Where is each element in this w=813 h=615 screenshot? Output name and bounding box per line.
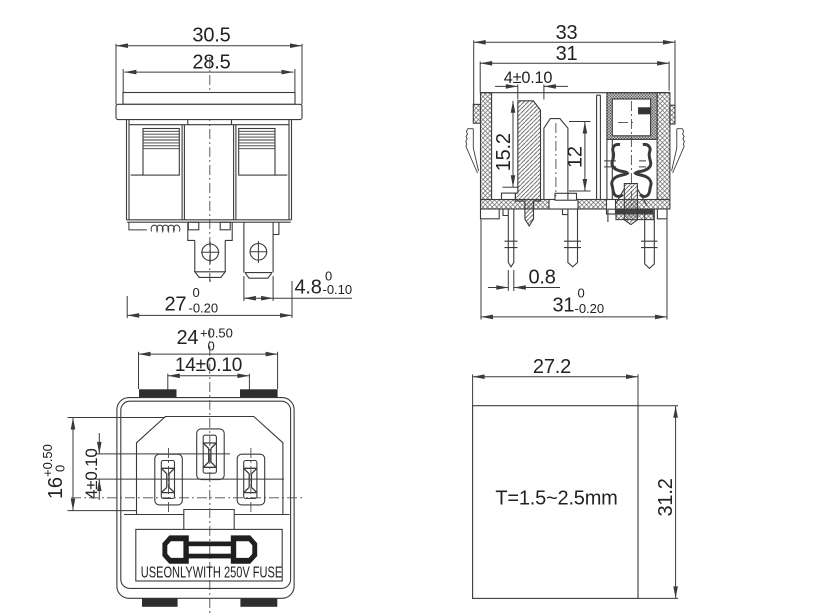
svg-text:-0.20: -0.20 (189, 300, 219, 315)
svg-text:33: 33 (556, 22, 578, 44)
svg-text:0: 0 (53, 465, 68, 472)
svg-text:+0.50: +0.50 (200, 326, 233, 341)
svg-text:27: 27 (165, 293, 187, 315)
svg-text:24: 24 (177, 327, 199, 349)
svg-text:4±0.10: 4±0.10 (82, 448, 101, 499)
svg-text:15.2: 15.2 (493, 133, 515, 171)
svg-text:-0.10: -0.10 (323, 282, 353, 297)
svg-text:31: 31 (556, 43, 578, 65)
svg-text:27.2: 27.2 (533, 356, 571, 378)
svg-text:28.5: 28.5 (192, 51, 230, 73)
svg-text:4±0.10: 4±0.10 (504, 69, 553, 87)
svg-text:0: 0 (208, 339, 215, 354)
svg-text:16: 16 (45, 477, 67, 499)
svg-text:0: 0 (578, 285, 585, 300)
svg-text:12: 12 (565, 146, 587, 168)
svg-text:T=1.5~2.5mm: T=1.5~2.5mm (495, 488, 617, 510)
svg-text:14±0.10: 14±0.10 (175, 355, 242, 376)
svg-text:31.2: 31.2 (655, 478, 677, 516)
svg-text:31: 31 (553, 294, 575, 316)
svg-text:30.5: 30.5 (192, 25, 230, 47)
svg-text:-0.20: -0.20 (575, 301, 605, 316)
svg-text:4.8: 4.8 (295, 277, 322, 299)
svg-text:USEONLYWITH 250V FUSE: USEONLYWITH 250V FUSE (141, 564, 282, 581)
svg-text:0.8: 0.8 (529, 267, 556, 289)
svg-text:0: 0 (193, 285, 200, 300)
